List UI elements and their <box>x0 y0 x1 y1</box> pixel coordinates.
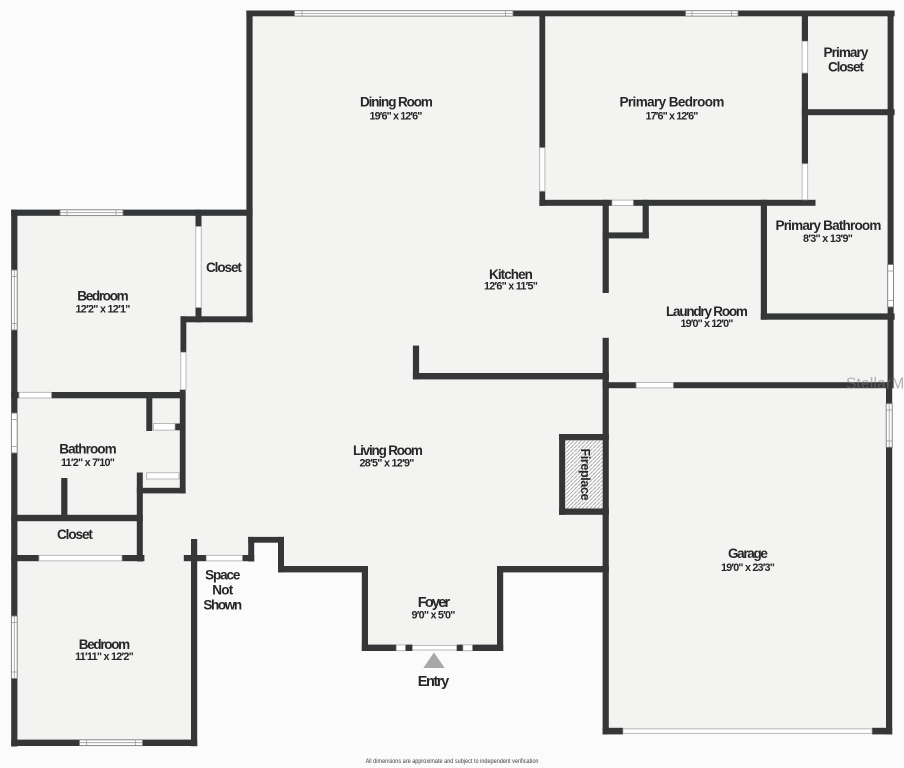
svg-text:11′11" x 12′2": 11′11" x 12′2" <box>75 651 134 663</box>
svg-text:Fireplace: Fireplace <box>578 449 592 501</box>
svg-text:Primary: Primary <box>824 45 869 60</box>
svg-text:Living Room: Living Room <box>353 443 423 458</box>
svg-text:All dimensions are approximate: All dimensions are approximate and subje… <box>366 759 539 765</box>
svg-text:Space: Space <box>205 568 241 583</box>
svg-text:Bedroom: Bedroom <box>79 637 131 652</box>
svg-text:28′5" x 12′9": 28′5" x 12′9" <box>360 458 415 470</box>
svg-text:11′2" x 7′10": 11′2" x 7′10" <box>61 457 115 469</box>
svg-text:Entry: Entry <box>418 674 450 690</box>
svg-text:Primary Bathroom: Primary Bathroom <box>776 218 882 233</box>
svg-text:Garage: Garage <box>728 546 768 561</box>
svg-text:Not: Not <box>212 583 233 598</box>
svg-text:12′2" x 12′1": 12′2" x 12′1" <box>76 304 131 316</box>
svg-text:17′6" x 12′6": 17′6" x 12′6" <box>646 111 699 123</box>
svg-text:Shown: Shown <box>203 597 242 612</box>
svg-text:Dining Room: Dining Room <box>360 95 433 110</box>
svg-text:19′6" x 12′6": 19′6" x 12′6" <box>370 111 423 123</box>
svg-text:Foyer: Foyer <box>418 595 451 611</box>
svg-text:Primary Bedroom: Primary Bedroom <box>620 95 725 110</box>
svg-text:Closet: Closet <box>828 60 864 75</box>
svg-text:Closet: Closet <box>57 527 93 542</box>
svg-text:Bathroom: Bathroom <box>59 442 117 457</box>
svg-text:19′0" x 12′0": 19′0" x 12′0" <box>681 318 734 330</box>
svg-text:9′0" x 5′0": 9′0" x 5′0" <box>412 610 456 622</box>
svg-text:Closet: Closet <box>206 260 242 275</box>
svg-text:8′3" x 13′9": 8′3" x 13′9" <box>803 233 853 245</box>
svg-text:19′0" x 23′3": 19′0" x 23′3" <box>721 562 775 574</box>
svg-text:Laundry Room: Laundry Room <box>666 304 748 319</box>
svg-text:Bedroom: Bedroom <box>77 289 129 304</box>
svg-text:12′6" x 11′5": 12′6" x 11′5" <box>484 281 538 293</box>
svg-text:StellarMLS: StellarMLS <box>846 376 904 393</box>
